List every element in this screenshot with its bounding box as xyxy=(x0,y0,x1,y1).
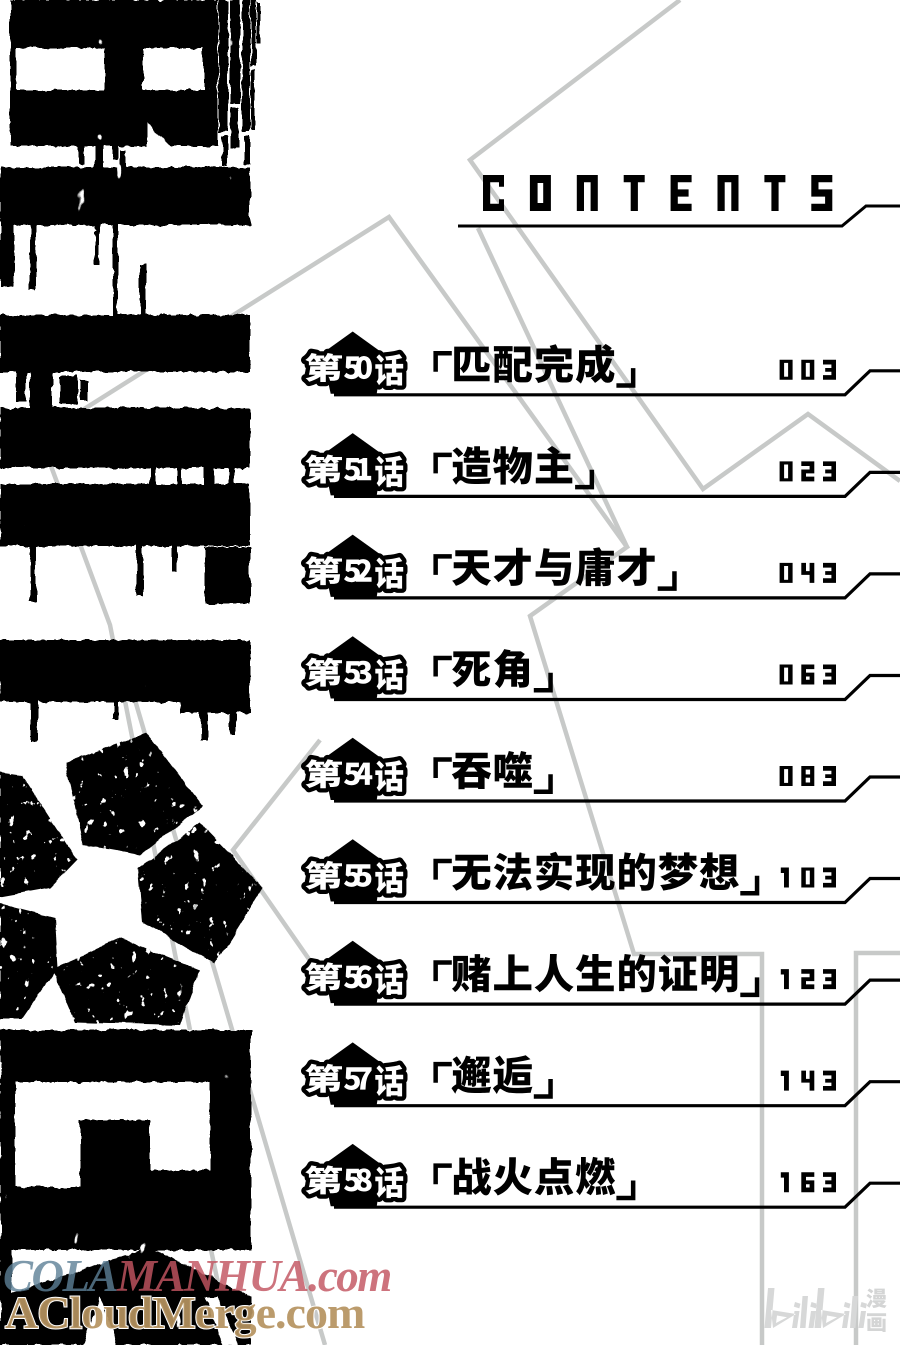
svg-text:ACloudMerge.com: ACloudMerge.com xyxy=(5,1287,365,1338)
